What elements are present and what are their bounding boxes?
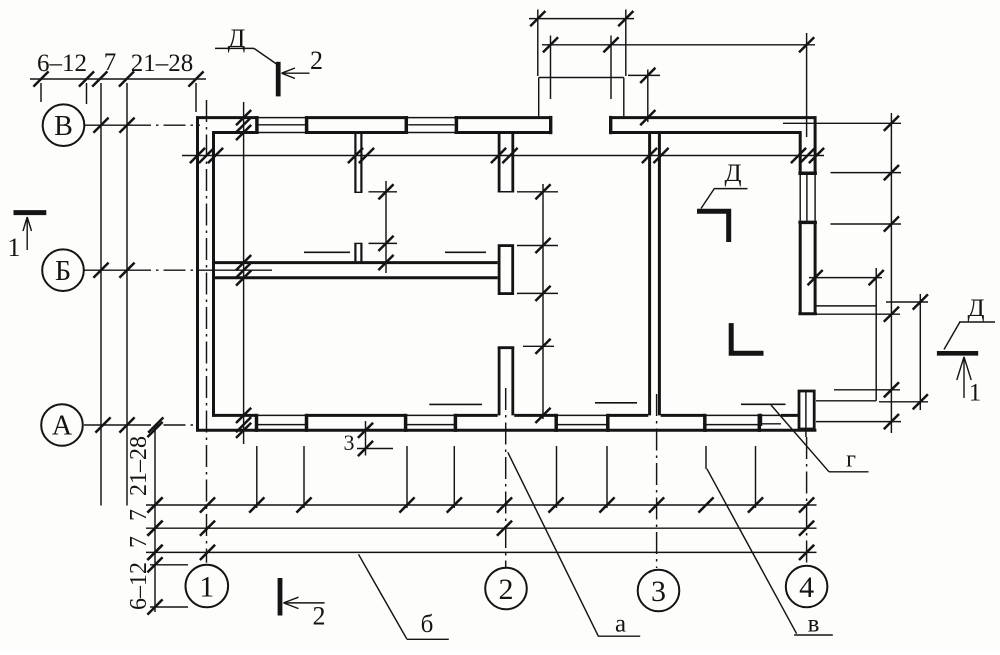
svg-text:А: А <box>52 411 73 442</box>
svg-text:1: 1 <box>199 571 214 604</box>
svg-text:7: 7 <box>126 509 152 521</box>
svg-text:2: 2 <box>499 573 514 606</box>
svg-text:6–12: 6–12 <box>37 50 87 77</box>
svg-text:3: 3 <box>344 430 355 455</box>
svg-text:7: 7 <box>126 536 152 548</box>
svg-text:а: а <box>615 611 626 638</box>
svg-text:21–28: 21–28 <box>126 436 152 496</box>
svg-text:б: б <box>421 611 434 638</box>
svg-text:Д: Д <box>724 160 741 187</box>
svg-text:6–12: 6–12 <box>126 562 152 610</box>
svg-text:2: 2 <box>310 46 323 75</box>
svg-text:7: 7 <box>104 49 117 76</box>
svg-text:1: 1 <box>8 233 21 262</box>
svg-text:4: 4 <box>799 571 814 604</box>
svg-text:1: 1 <box>969 380 982 407</box>
svg-text:21–28: 21–28 <box>131 50 194 77</box>
svg-text:г: г <box>846 447 856 473</box>
svg-text:В: В <box>54 111 73 142</box>
svg-text:2: 2 <box>313 602 326 631</box>
svg-text:Б: Б <box>55 256 71 287</box>
svg-text:3: 3 <box>651 575 666 608</box>
svg-text:в: в <box>808 611 820 638</box>
svg-text:Д: Д <box>967 295 984 322</box>
